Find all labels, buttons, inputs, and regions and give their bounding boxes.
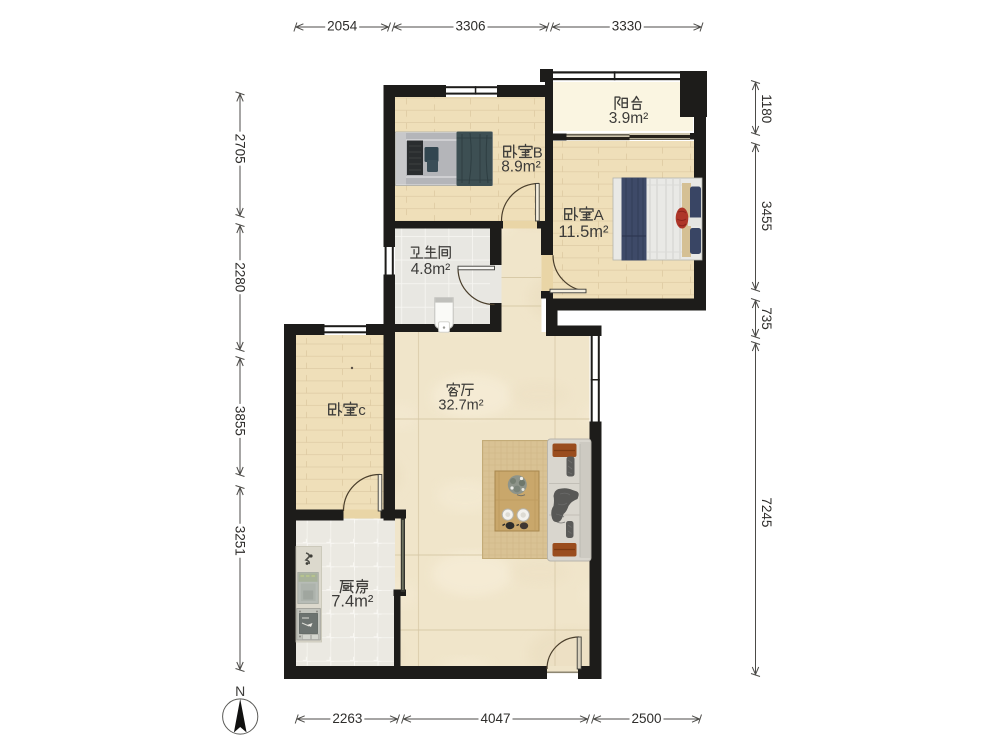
svg-text:3251: 3251 xyxy=(233,526,248,556)
svg-text:2054: 2054 xyxy=(327,19,358,34)
svg-text:1180: 1180 xyxy=(759,94,774,123)
svg-text:7245: 7245 xyxy=(759,497,774,527)
svg-text:8.9m²: 8.9m² xyxy=(501,159,541,176)
svg-text:2263: 2263 xyxy=(332,711,362,726)
svg-text:A: A xyxy=(594,207,604,224)
svg-text:7.4m²: 7.4m² xyxy=(331,593,374,611)
svg-text:3855: 3855 xyxy=(233,406,248,436)
svg-text:2500: 2500 xyxy=(631,711,661,726)
svg-text:N: N xyxy=(235,683,245,699)
svg-text:735: 735 xyxy=(759,307,774,330)
svg-text:4047: 4047 xyxy=(480,711,510,726)
svg-text:4.8m²: 4.8m² xyxy=(411,261,451,278)
svg-text:c: c xyxy=(358,402,366,419)
svg-text:3330: 3330 xyxy=(612,19,642,34)
svg-text:11.5m²: 11.5m² xyxy=(558,223,609,241)
svg-text:2705: 2705 xyxy=(233,134,248,164)
svg-text:3.9m²: 3.9m² xyxy=(609,110,649,127)
svg-text:2280: 2280 xyxy=(233,262,248,292)
svg-text:3455: 3455 xyxy=(759,201,774,231)
svg-text:3306: 3306 xyxy=(455,19,485,34)
svg-text:32.7m²: 32.7m² xyxy=(438,397,483,413)
